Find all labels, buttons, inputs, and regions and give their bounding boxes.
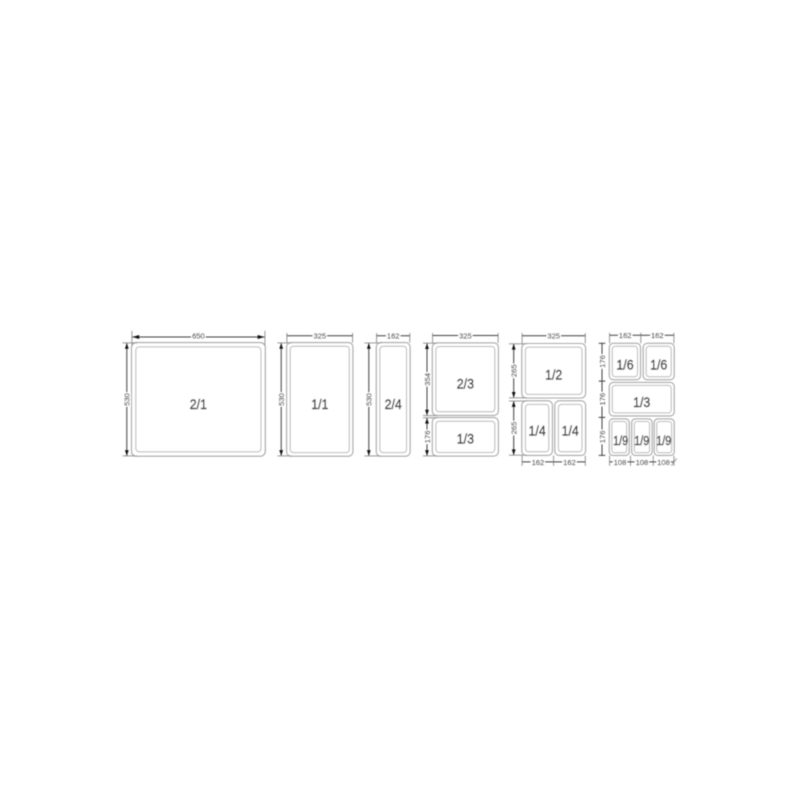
svg-text:530: 530 bbox=[123, 393, 132, 406]
svg-text:176: 176 bbox=[598, 355, 607, 368]
svg-text:1/3: 1/3 bbox=[457, 432, 474, 448]
svg-text:162: 162 bbox=[619, 331, 632, 340]
svg-text:265: 265 bbox=[510, 364, 519, 377]
svg-text:530: 530 bbox=[277, 393, 286, 406]
svg-text:265: 265 bbox=[510, 422, 519, 435]
svg-text:2/3: 2/3 bbox=[457, 377, 474, 393]
svg-text:1/9: 1/9 bbox=[656, 434, 671, 448]
svg-text:1/9: 1/9 bbox=[613, 434, 628, 448]
svg-text:1/2: 1/2 bbox=[545, 368, 562, 384]
svg-text:108: 108 bbox=[614, 458, 627, 467]
svg-text:354: 354 bbox=[423, 373, 432, 386]
svg-text:1/4: 1/4 bbox=[529, 424, 546, 440]
svg-text:176: 176 bbox=[423, 431, 432, 444]
svg-text:530: 530 bbox=[365, 393, 374, 406]
svg-text:162: 162 bbox=[532, 458, 545, 467]
svg-text:1/3: 1/3 bbox=[633, 395, 650, 411]
svg-text:1/9: 1/9 bbox=[634, 434, 649, 448]
svg-text:1/4: 1/4 bbox=[562, 424, 579, 440]
svg-text:2/4: 2/4 bbox=[385, 397, 402, 413]
svg-text:162: 162 bbox=[651, 331, 664, 340]
svg-text:650: 650 bbox=[192, 332, 205, 341]
svg-text:1/6: 1/6 bbox=[616, 358, 633, 374]
svg-text:1/6: 1/6 bbox=[650, 358, 667, 374]
svg-text:2/1: 2/1 bbox=[190, 397, 207, 413]
svg-text:325: 325 bbox=[313, 332, 326, 341]
svg-text:325: 325 bbox=[459, 331, 472, 340]
svg-text:176: 176 bbox=[598, 393, 607, 406]
svg-text:1/1: 1/1 bbox=[311, 397, 328, 413]
svg-text:162: 162 bbox=[563, 458, 576, 467]
svg-text:162: 162 bbox=[387, 332, 400, 341]
svg-text:325: 325 bbox=[547, 332, 560, 341]
svg-text:108: 108 bbox=[657, 458, 670, 467]
svg-text:176: 176 bbox=[598, 431, 607, 444]
svg-text:108: 108 bbox=[636, 458, 649, 467]
